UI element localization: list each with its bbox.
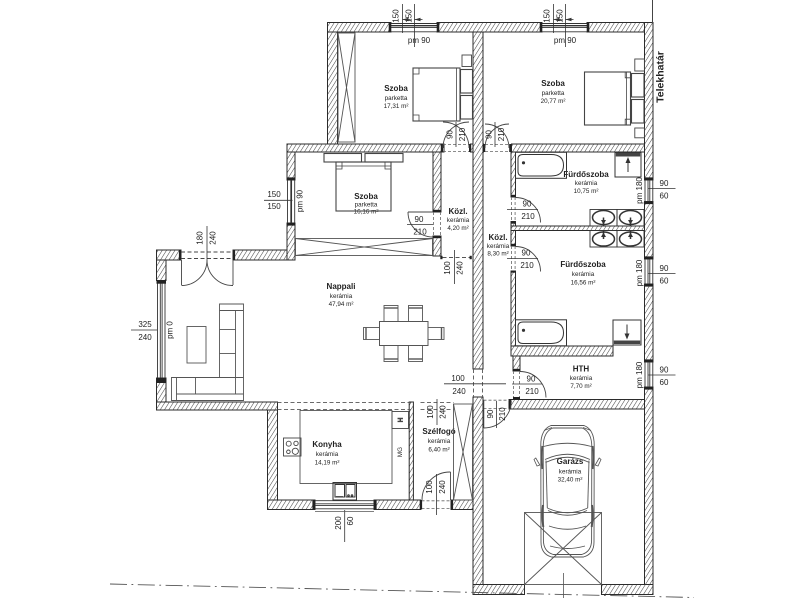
- svg-text:90: 90: [486, 409, 495, 418]
- svg-text:20,77 m²: 20,77 m²: [541, 98, 566, 105]
- svg-text:pm 180: pm 180: [635, 361, 644, 388]
- svg-text:kerámia: kerámia: [447, 217, 470, 224]
- svg-text:90: 90: [446, 130, 455, 139]
- svg-text:16,16 m²: 16,16 m²: [354, 209, 379, 216]
- svg-text:MG: MG: [397, 447, 404, 457]
- svg-text:6,40 m²: 6,40 m²: [428, 447, 449, 454]
- svg-text:Szoba: Szoba: [384, 84, 408, 93]
- svg-text:32,40 m²: 32,40 m²: [558, 477, 583, 484]
- svg-text:kerámia: kerámia: [330, 293, 353, 300]
- svg-text:pm 180: pm 180: [635, 259, 644, 286]
- svg-text:60: 60: [660, 192, 669, 201]
- svg-text:90: 90: [523, 200, 532, 209]
- svg-text:parketta: parketta: [385, 95, 408, 102]
- svg-text:Nappali: Nappali: [327, 282, 356, 291]
- svg-text:240: 240: [456, 261, 465, 275]
- svg-text:90: 90: [522, 249, 531, 258]
- svg-text:210: 210: [413, 228, 427, 237]
- svg-text:HTH: HTH: [573, 365, 590, 374]
- svg-text:H: H: [398, 417, 405, 422]
- svg-text:Közl.: Közl.: [488, 233, 507, 242]
- svg-text:240: 240: [138, 333, 152, 342]
- svg-text:60: 60: [346, 516, 355, 525]
- svg-text:7,70 m²: 7,70 m²: [570, 383, 591, 390]
- svg-text:150: 150: [543, 9, 552, 23]
- svg-text:Közl.: Közl.: [448, 207, 467, 216]
- svg-text:100: 100: [425, 480, 434, 494]
- svg-text:240: 240: [438, 480, 447, 494]
- svg-text:parketta: parketta: [542, 90, 565, 97]
- svg-text:Fürdőszoba: Fürdőszoba: [560, 260, 606, 269]
- svg-text:210: 210: [498, 407, 507, 421]
- svg-text:90: 90: [415, 215, 424, 224]
- svg-text:Fürdőszoba: Fürdőszoba: [563, 170, 609, 179]
- svg-text:150: 150: [267, 202, 281, 211]
- svg-text:pm 180: pm 180: [635, 177, 644, 204]
- svg-text:14,19 m²: 14,19 m²: [315, 460, 340, 467]
- svg-text:150: 150: [405, 9, 414, 23]
- svg-text:60: 60: [660, 378, 669, 387]
- svg-text:100: 100: [426, 405, 435, 419]
- svg-text:240: 240: [452, 387, 466, 396]
- svg-text:16,56 m²: 16,56 m²: [571, 280, 596, 287]
- svg-text:100: 100: [443, 261, 452, 275]
- svg-text:325: 325: [138, 320, 152, 329]
- svg-text:Garázs: Garázs: [557, 457, 584, 466]
- svg-text:180: 180: [196, 231, 205, 245]
- svg-text:kerámia: kerámia: [559, 469, 582, 476]
- svg-text:pm 0: pm 0: [166, 321, 175, 339]
- svg-text:90: 90: [527, 375, 536, 384]
- svg-text:90: 90: [485, 130, 494, 139]
- svg-text:kerámia: kerámia: [572, 271, 595, 278]
- svg-text:Telekhatár: Telekhatár: [654, 51, 666, 103]
- svg-text:Szoba: Szoba: [541, 79, 565, 88]
- svg-text:100: 100: [451, 374, 465, 383]
- svg-text:240: 240: [439, 405, 448, 419]
- svg-text:150: 150: [267, 190, 281, 199]
- svg-text:parketta: parketta: [355, 202, 378, 209]
- svg-text:17,31 m²: 17,31 m²: [384, 103, 409, 110]
- svg-text:150: 150: [392, 9, 401, 23]
- svg-text:240: 240: [209, 231, 218, 245]
- svg-text:kerámia: kerámia: [428, 438, 451, 445]
- svg-text:210: 210: [525, 387, 539, 396]
- svg-text:kerámia: kerámia: [575, 180, 598, 187]
- svg-text:Szélfogó: Szélfogó: [422, 427, 455, 436]
- svg-text:pm 90: pm 90: [296, 189, 305, 212]
- svg-text:210: 210: [520, 261, 534, 270]
- svg-text:kerámia: kerámia: [570, 375, 593, 382]
- svg-text:90: 90: [660, 264, 669, 273]
- svg-text:90: 90: [660, 179, 669, 188]
- svg-text:pm 90: pm 90: [408, 36, 431, 45]
- svg-text:10,75 m²: 10,75 m²: [574, 188, 599, 195]
- svg-text:8,30 m²: 8,30 m²: [487, 251, 508, 258]
- svg-text:200: 200: [334, 516, 343, 530]
- svg-text:kerámia: kerámia: [316, 451, 339, 458]
- svg-text:4,20 m²: 4,20 m²: [447, 225, 468, 232]
- svg-text:pm 90: pm 90: [554, 36, 577, 45]
- svg-text:kerámia: kerámia: [487, 243, 510, 250]
- svg-text:47,94 m²: 47,94 m²: [329, 301, 354, 308]
- svg-text:210: 210: [458, 127, 467, 141]
- svg-text:150: 150: [556, 9, 565, 23]
- svg-text:Szoba: Szoba: [354, 192, 378, 201]
- svg-text:210: 210: [521, 212, 535, 221]
- svg-text:90: 90: [660, 365, 669, 374]
- svg-text:Konyha: Konyha: [312, 440, 342, 449]
- svg-text:60: 60: [660, 276, 669, 285]
- svg-text:210: 210: [497, 127, 506, 141]
